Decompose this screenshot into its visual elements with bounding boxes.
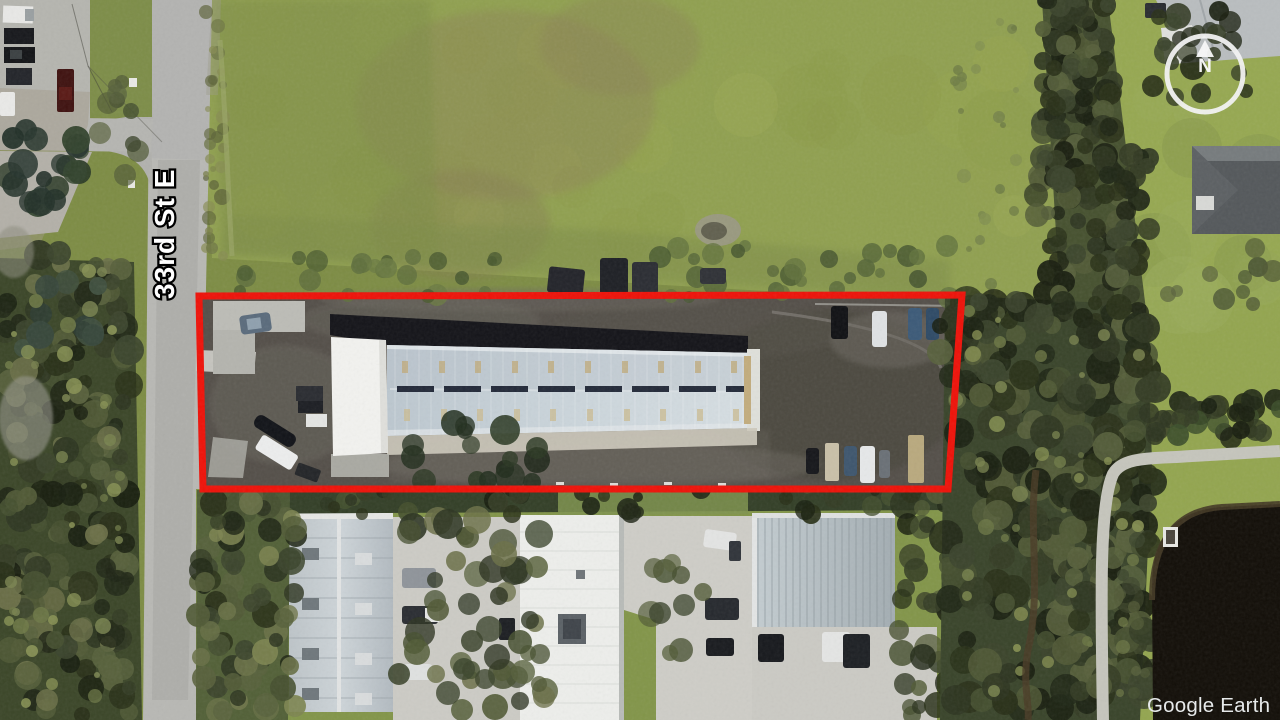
svg-text:33rd St E: 33rd St E — [149, 169, 180, 299]
svg-text:Google Earth: Google Earth — [1147, 694, 1270, 717]
